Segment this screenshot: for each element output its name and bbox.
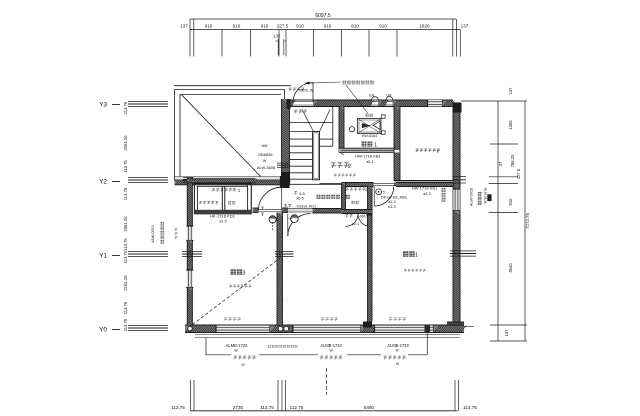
svg-text:2061.25: 2061.25: [123, 135, 128, 151]
svg-text:0910L W: 0910L W: [299, 88, 314, 92]
svg-text:137: 137: [508, 87, 513, 95]
svg-text:a5-5: a5-5: [296, 197, 304, 201]
svg-text:1365: 1365: [508, 120, 513, 130]
svg-text:137: 137: [504, 329, 509, 337]
svg-text:5-5: 5-5: [299, 192, 305, 196]
svg-text:137: 137: [180, 23, 188, 28]
svg-text:910: 910: [296, 23, 304, 28]
svg-text:-0919L KD1: -0919L KD1: [296, 205, 316, 209]
svg-text:113.75: 113.75: [123, 101, 128, 114]
svg-text:ALMB-1723: ALMB-1723: [387, 343, 409, 348]
svg-text:113.75: 113.75: [463, 405, 477, 410]
svg-text:1820: 1820: [419, 23, 430, 28]
svg-text:b1-3: b1-3: [388, 205, 396, 209]
svg-text:113.75: 113.75: [123, 187, 128, 200]
svg-text:37: 37: [498, 161, 503, 166]
svg-text:DF-0710L KB1: DF-0710L KB1: [381, 194, 408, 199]
svg-text:910: 910: [261, 23, 269, 28]
svg-text:ALW-3606: ALW-3606: [257, 165, 276, 170]
svg-text:EA: EA: [369, 94, 374, 98]
svg-text:ALW-0910: ALW-0910: [469, 187, 474, 206]
svg-text:113.75: 113.75: [123, 301, 128, 314]
svg-text:ALW-0910: ALW-0910: [151, 225, 155, 243]
svg-text:227.5: 227.5: [277, 23, 289, 28]
svg-text:Y2: Y2: [99, 179, 107, 186]
svg-text:132: 132: [274, 34, 282, 39]
svg-text:ALMB-1723: ALMB-1723: [226, 343, 248, 348]
svg-text:227.5: 227.5: [516, 168, 521, 179]
svg-text:a3-3: a3-3: [423, 192, 431, 196]
svg-text:1: 1: [415, 253, 418, 259]
svg-text:3640: 3640: [508, 263, 513, 273]
svg-text:113.75: 113.75: [123, 238, 128, 251]
svg-text:910: 910: [205, 23, 213, 28]
svg-text:KW-6164: KW-6164: [362, 134, 377, 138]
svg-text:5460: 5460: [364, 405, 375, 410]
svg-text:910: 910: [324, 23, 332, 28]
svg-text:a5-1: a5-1: [366, 160, 374, 164]
svg-text:113.75: 113.75: [260, 405, 274, 410]
svg-text:W: W: [263, 159, 267, 163]
svg-text:Y3: Y3: [99, 102, 107, 109]
svg-text:HW-1718 KB1: HW-1718 KB1: [355, 154, 381, 159]
svg-text:1: 1: [374, 142, 377, 148]
svg-text:HK-1718 KD1: HK-1718 KD1: [210, 214, 235, 219]
svg-text:786.25: 786.25: [510, 154, 515, 167]
svg-text:113.75: 113.75: [123, 318, 128, 331]
svg-text:2181.25: 2181.25: [123, 275, 128, 291]
svg-text:OA: OA: [386, 94, 392, 98]
svg-text:-0910: -0910: [359, 215, 368, 219]
svg-text:a1-5: a1-5: [219, 220, 227, 224]
svg-text:137: 137: [461, 23, 469, 28]
svg-text:a2-1: a2-1: [352, 222, 359, 226]
svg-text:Y0: Y0: [99, 327, 107, 334]
svg-text:112.75: 112.75: [290, 405, 304, 410]
svg-text:AW: AW: [262, 144, 268, 148]
svg-text:2: 2: [348, 164, 351, 170]
svg-text:910: 910: [233, 23, 241, 28]
svg-text:910: 910: [508, 198, 513, 206]
svg-text:a1-3: a1-3: [388, 200, 396, 204]
svg-text:KB6836: KB6836: [258, 152, 273, 157]
svg-text:2061.25: 2061.25: [123, 216, 128, 232]
svg-text:3: 3: [243, 271, 246, 277]
svg-text:1: 1: [436, 150, 438, 154]
svg-text:113.75: 113.75: [171, 405, 185, 410]
svg-text:113.75: 113.75: [123, 160, 128, 173]
svg-text:910: 910: [351, 23, 359, 28]
svg-text:7272.75: 7272.75: [525, 213, 530, 229]
svg-text:Y1: Y1: [99, 253, 107, 260]
svg-text:113.75: 113.75: [123, 250, 128, 263]
svg-text:6097.5: 6097.5: [315, 13, 331, 19]
svg-text:910: 910: [379, 23, 387, 28]
svg-text:2730: 2730: [233, 405, 244, 410]
svg-text:3: 3: [238, 189, 240, 193]
svg-text:ALMB-1723: ALMB-1723: [320, 343, 342, 348]
